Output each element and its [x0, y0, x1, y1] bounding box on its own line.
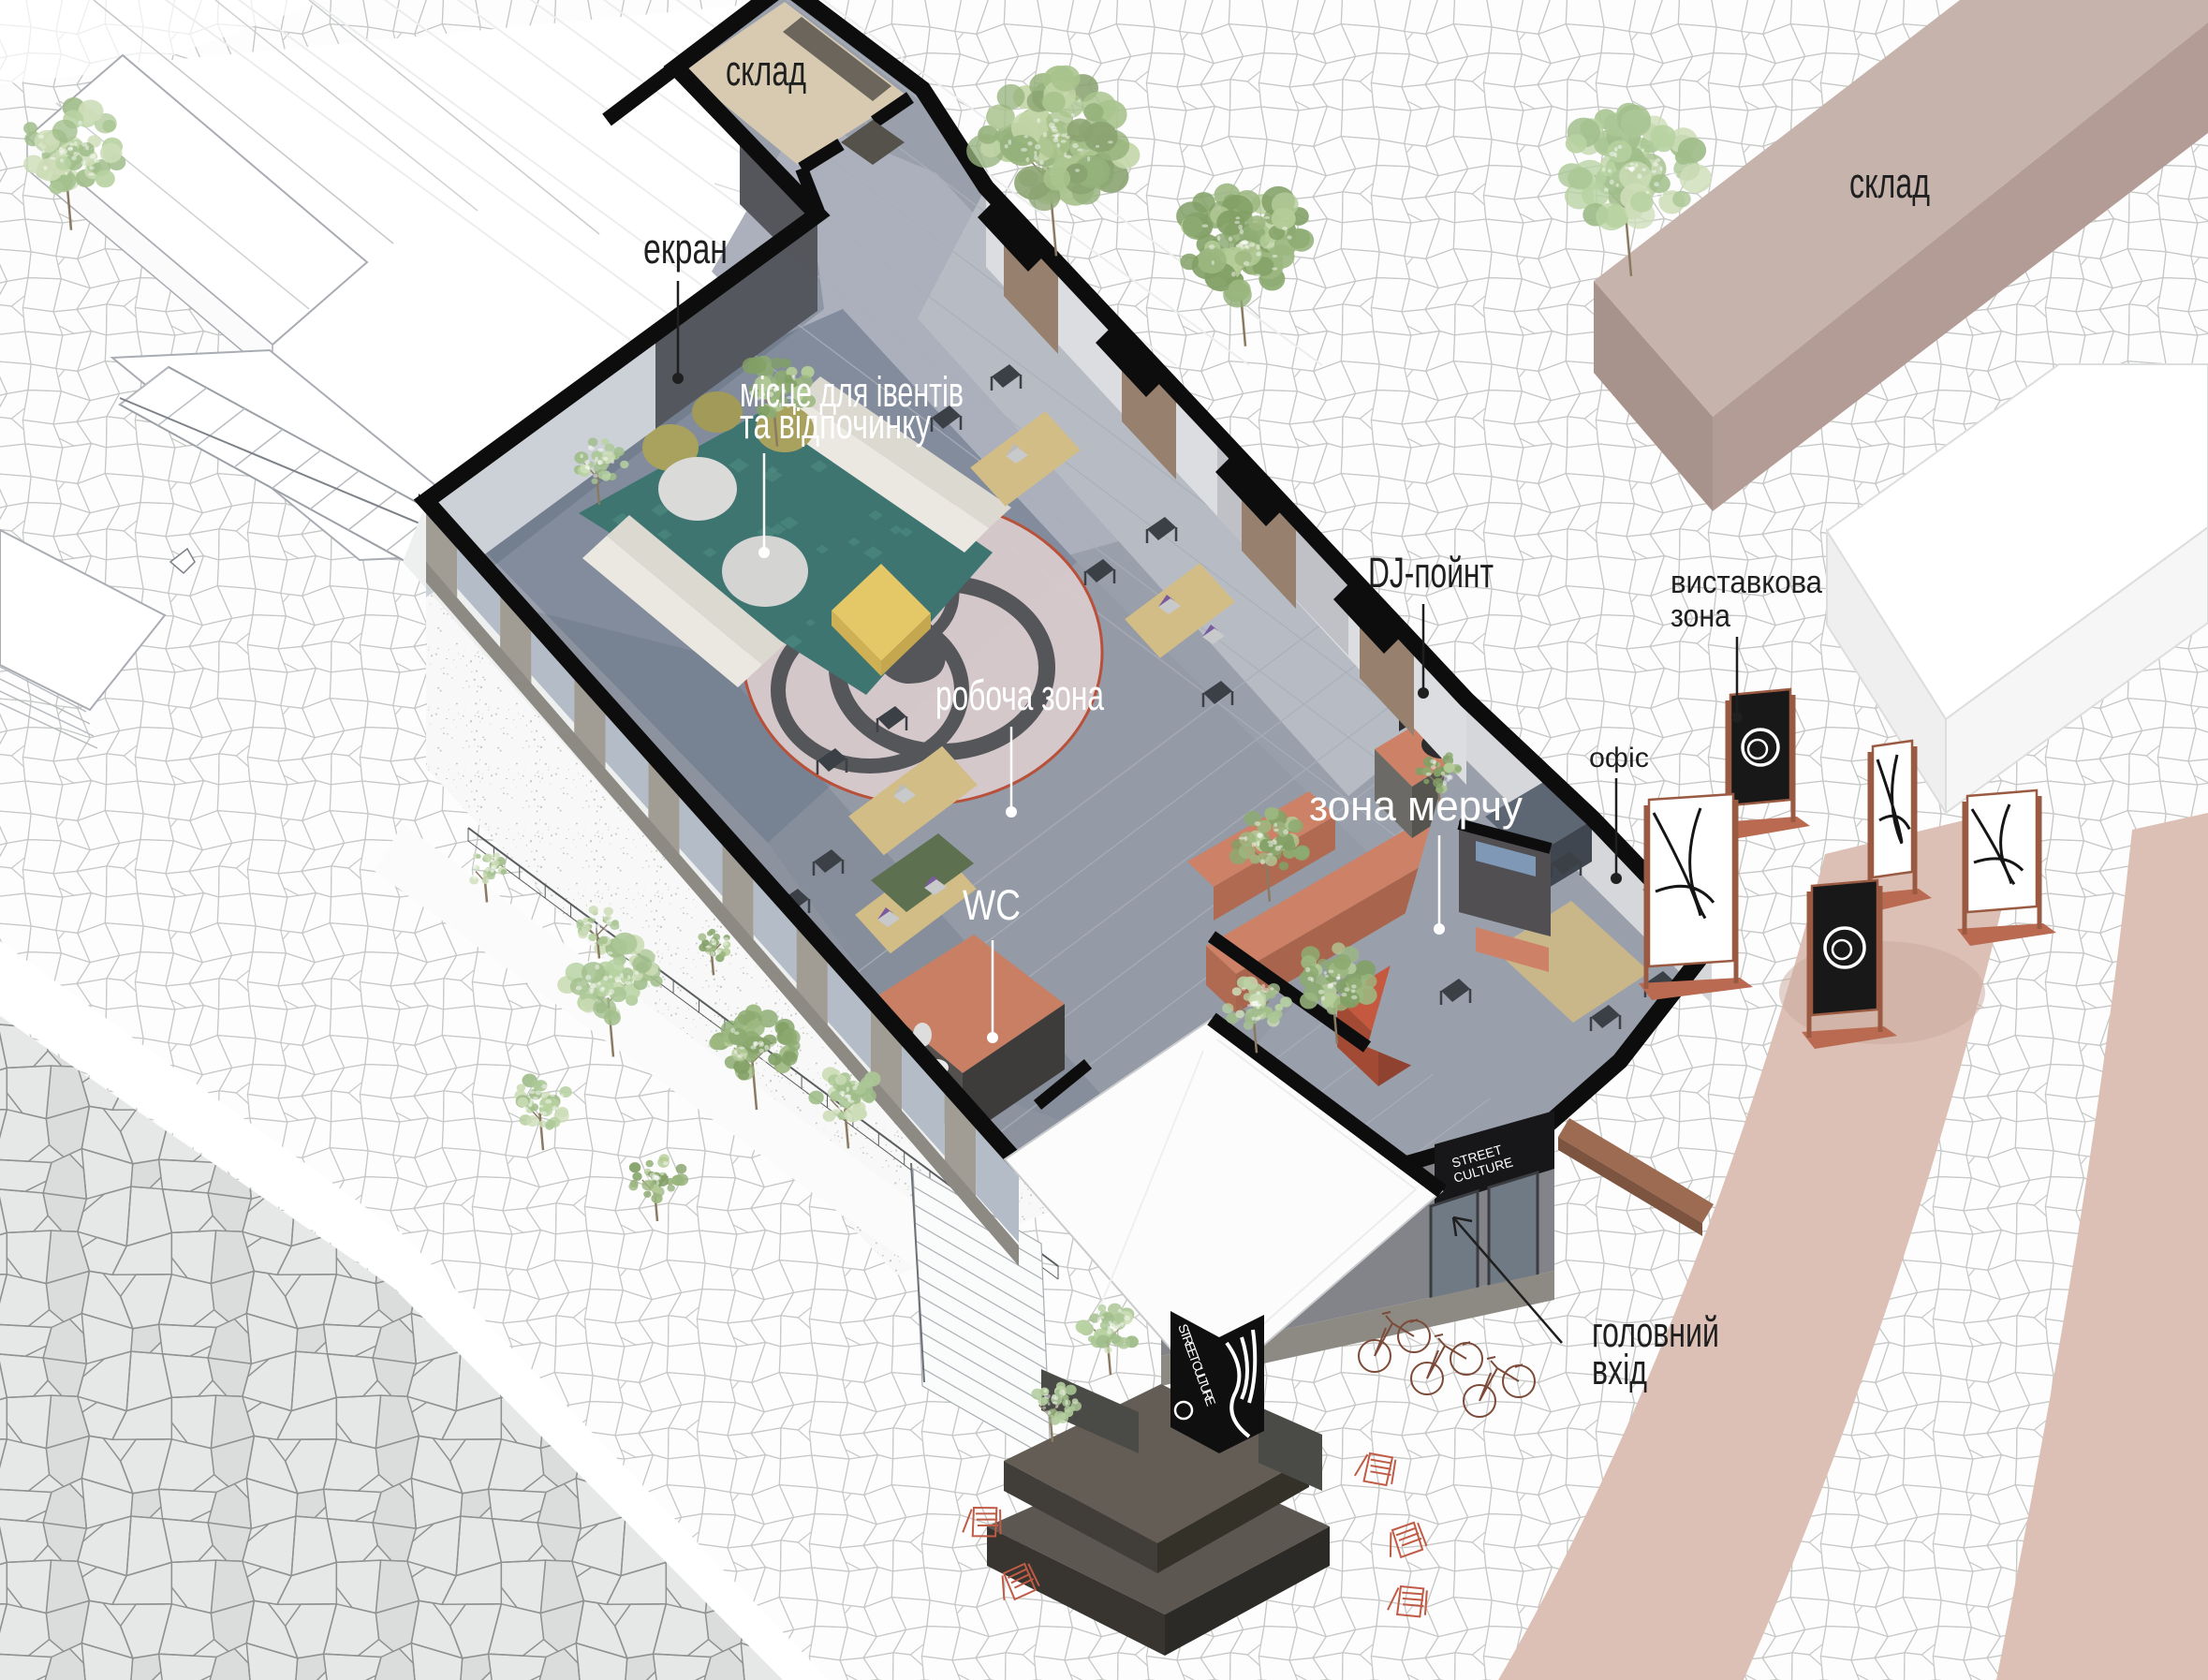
- svg-text:склад: склад: [726, 47, 806, 95]
- svg-text:робоча зона: робоча зона: [935, 671, 1105, 719]
- svg-text:DJ-пойнт: DJ-пойнт: [1368, 549, 1494, 597]
- svg-text:виставкова: виставкова: [1671, 565, 1822, 600]
- svg-text:зона: зона: [1671, 598, 1730, 634]
- svg-text:WC: WC: [963, 881, 1021, 929]
- svg-text:зона мерчу: зона мерчу: [1309, 782, 1523, 830]
- svg-text:вхід: вхід: [1592, 1346, 1647, 1393]
- svg-text:екран: екран: [643, 225, 728, 273]
- svg-text:та відпочинку: та відпочинку: [740, 400, 931, 448]
- svg-text:офіс: офіс: [1589, 743, 1649, 774]
- svg-text:склад: склад: [1849, 159, 1930, 207]
